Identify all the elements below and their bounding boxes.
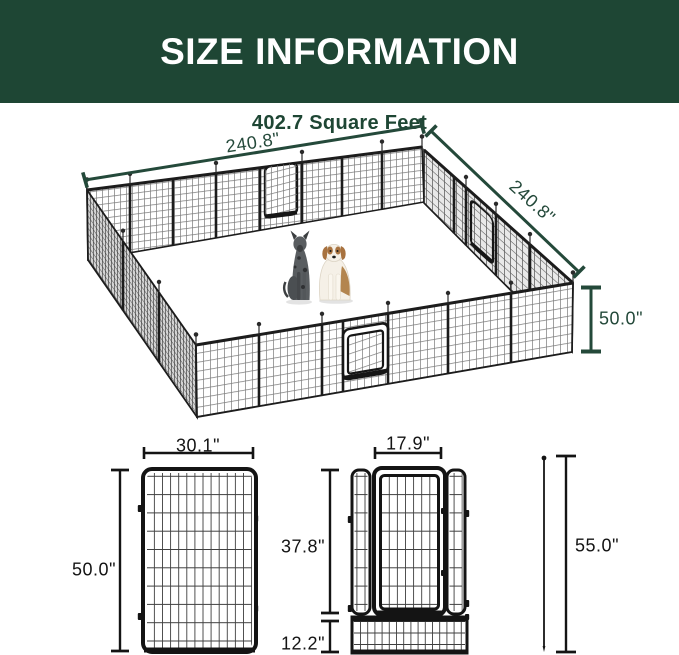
pen-back-gate <box>265 163 297 218</box>
panel-height-dimension: 50.0" <box>72 560 116 581</box>
gate-total-height-dimension: 55.0" <box>575 536 619 557</box>
saint-bernard-illustration <box>319 244 353 303</box>
panel-front-view-illustration <box>111 447 258 652</box>
pen-height-dimension-line <box>581 288 601 352</box>
gate-width-dimension: 17.9" <box>386 434 430 455</box>
pen-height-dimension: 50.0" <box>599 309 643 330</box>
size-diagram-canvas <box>0 0 679 655</box>
gate-door-height-dimension: 37.8" <box>281 537 325 558</box>
pen-front-wall <box>196 283 573 417</box>
ground-stake-illustration <box>542 456 547 652</box>
great-dane-illustration <box>284 231 312 305</box>
playpen-isometric-illustration <box>83 118 601 417</box>
gate-front-view-illustration <box>321 447 576 653</box>
pen-front-gate <box>343 322 388 380</box>
gate-total-height-dimension-line <box>556 456 576 652</box>
gate-base-height-dimension: 12.2" <box>281 634 325 655</box>
pen-back-wall <box>87 147 424 260</box>
panel-width-dimension: 30.1" <box>176 436 220 457</box>
